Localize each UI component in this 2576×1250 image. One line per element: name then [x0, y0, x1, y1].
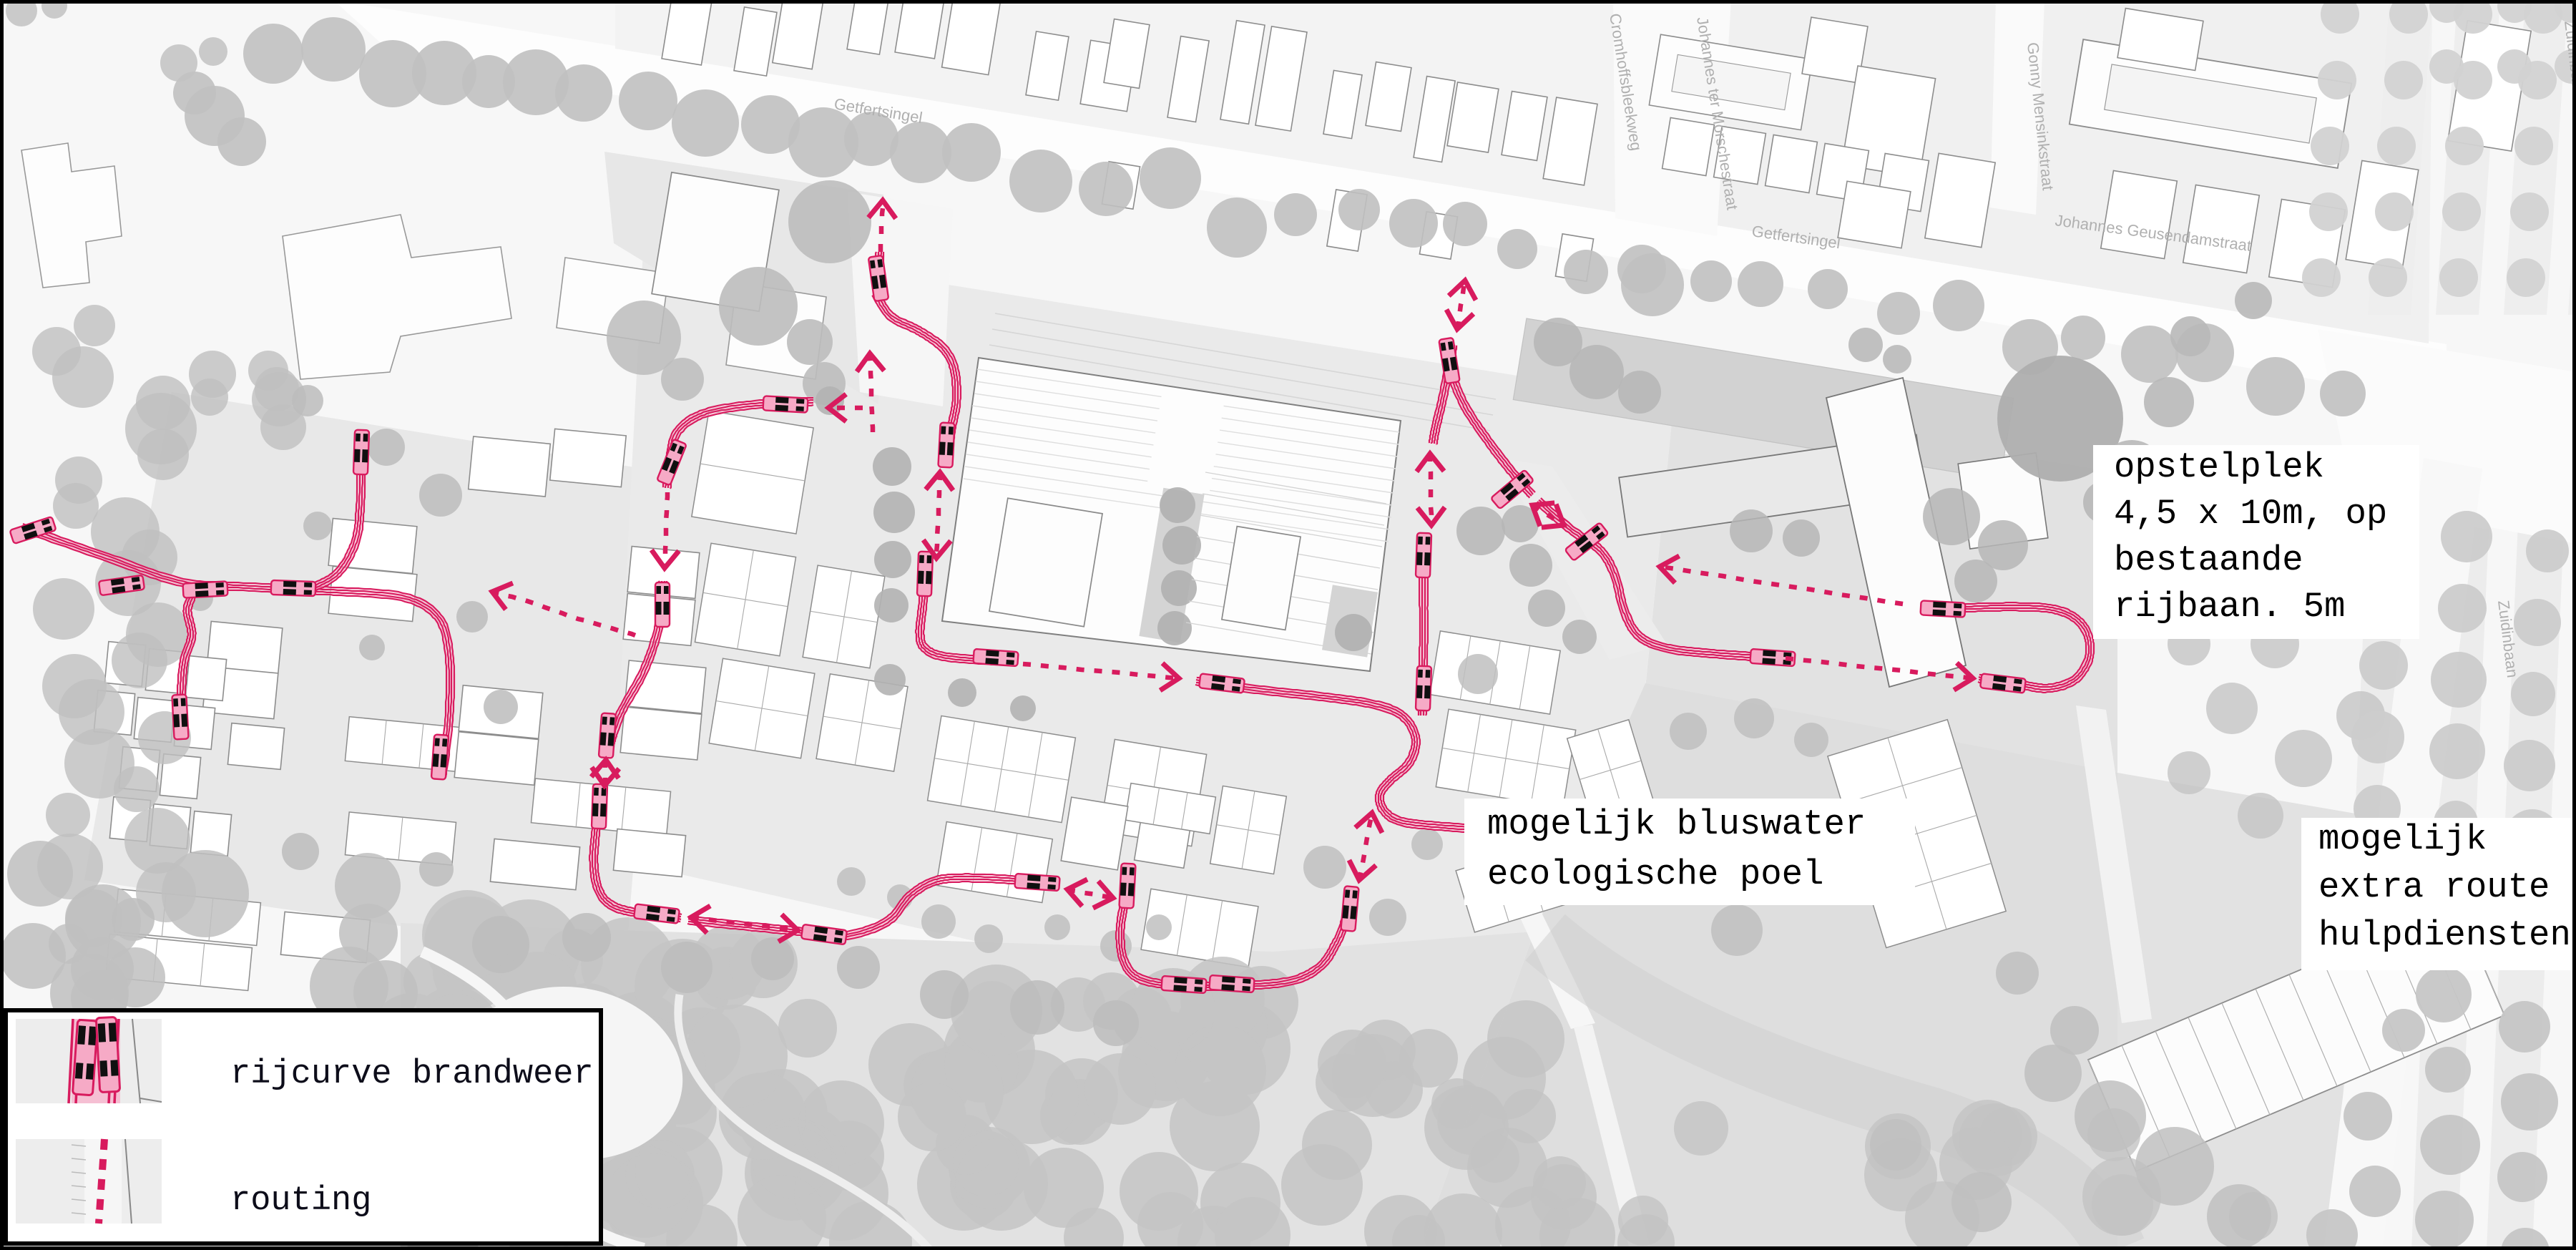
svg-text:mogelijk bluswater: mogelijk bluswater — [1487, 804, 1866, 844]
svg-text:extra route: extra route — [2318, 867, 2550, 907]
svg-text:rijbaan. 5m: rijbaan. 5m — [2114, 587, 2345, 627]
svg-text:routing: routing — [230, 1182, 371, 1220]
svg-text:4,5 x 10m, op: 4,5 x 10m, op — [2114, 494, 2387, 534]
svg-text:rijcurve brandweer: rijcurve brandweer — [230, 1055, 594, 1093]
svg-text:bestaande: bestaande — [2114, 540, 2303, 580]
svg-text:opstelplek: opstelplek — [2114, 447, 2324, 487]
svg-text:ecologische poel: ecologische poel — [1487, 854, 1823, 894]
svg-text:mogelijk: mogelijk — [2318, 819, 2487, 859]
svg-text:hulpdiensten: hulpdiensten — [2318, 915, 2571, 955]
